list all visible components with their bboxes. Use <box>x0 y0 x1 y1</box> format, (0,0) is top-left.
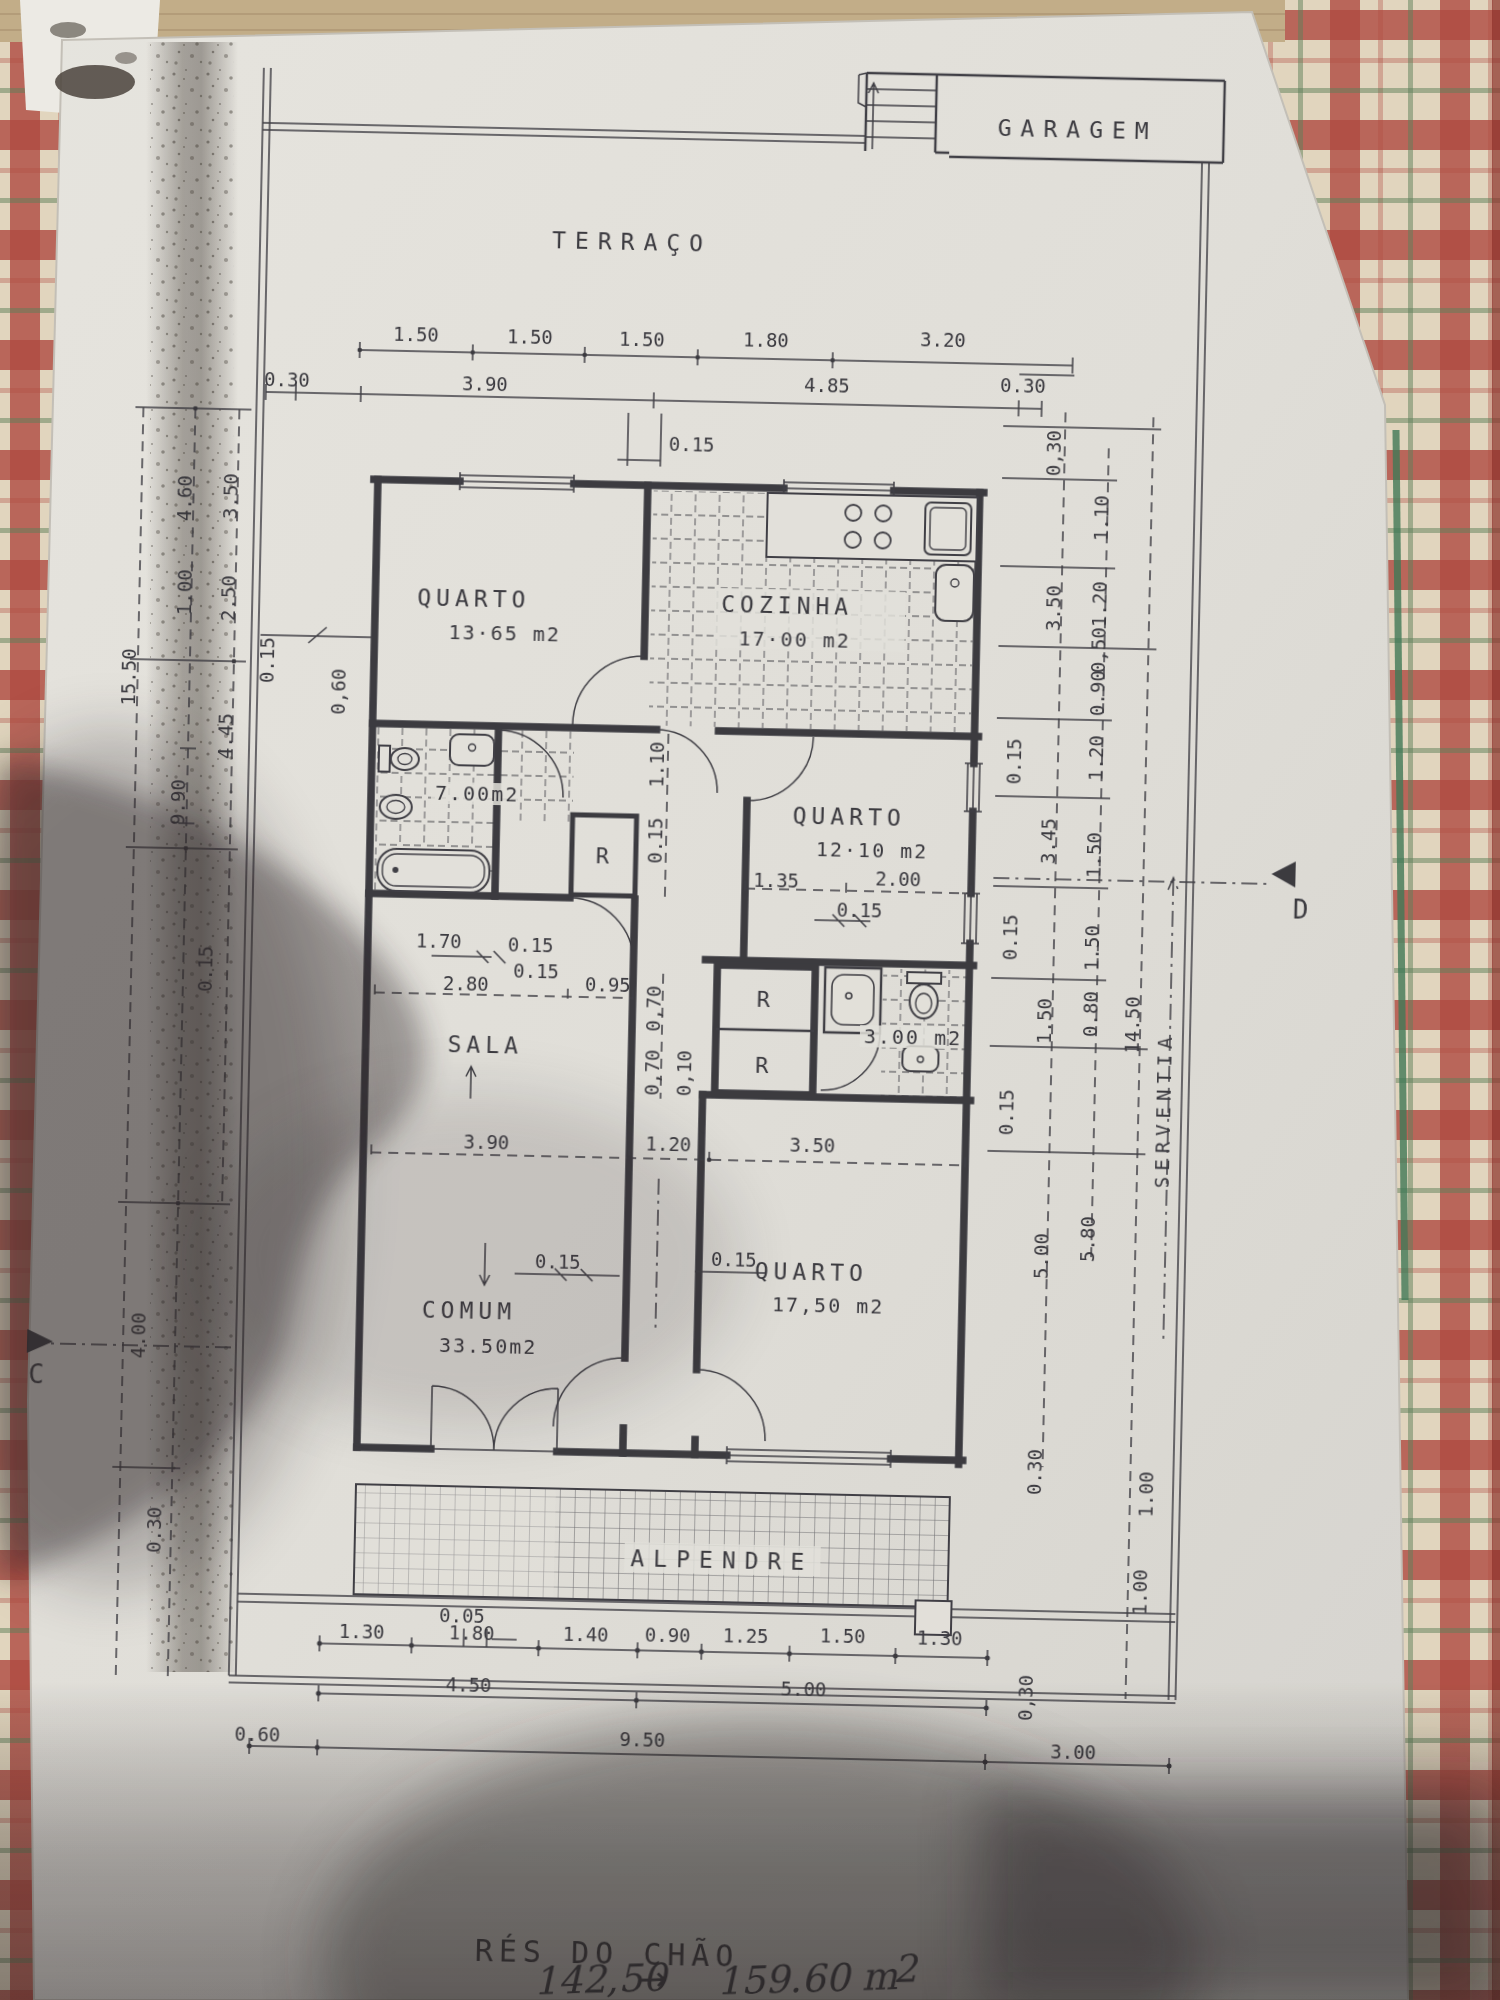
photo-shadows <box>0 0 1500 2000</box>
photo-of-floor-plan: GARAGEM TERRAÇO 1.50 1.50 1.50 1.80 3.20… <box>0 0 1500 2000</box>
floor-plan-canvas: GARAGEM TERRAÇO 1.50 1.50 1.50 1.80 3.20… <box>0 0 1500 2000</box>
